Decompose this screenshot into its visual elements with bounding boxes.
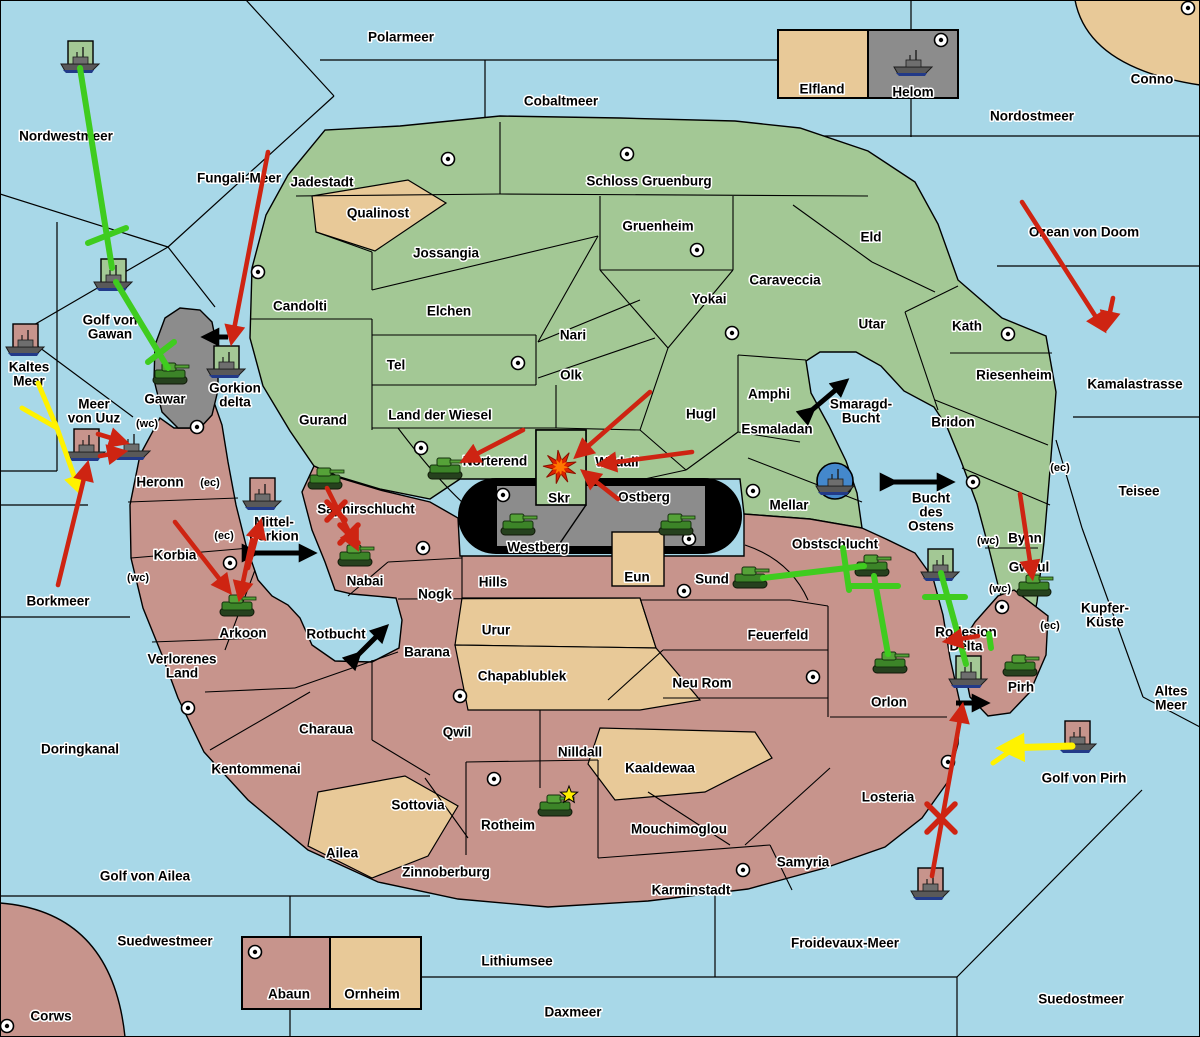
province-label: Kaaldewaa: [625, 761, 695, 776]
tank-barrel-icon: [755, 569, 769, 572]
coast-marker-label: (ec): [200, 477, 220, 489]
supply-center-icon: [249, 946, 262, 959]
province-label: Elfland: [799, 82, 844, 97]
province-label: Bridon: [931, 415, 975, 430]
ship-hull-icon: [207, 369, 245, 376]
tank-barrel-icon: [1039, 577, 1053, 580]
supply-center-dot: [687, 537, 691, 541]
province-label: Gruenheim: [622, 219, 693, 234]
sea-label: Fungali-Meer: [197, 171, 282, 186]
supply-center-icon: [747, 485, 760, 498]
sea-label: Golf von: [83, 313, 138, 328]
sea-label: Doringkanal: [41, 742, 119, 757]
supply-center-icon: [621, 148, 634, 161]
tank-barrel-icon: [895, 654, 909, 657]
sea-label: Rotbucht: [306, 627, 366, 642]
province-label: Losteria: [862, 790, 915, 805]
ship-waterline-icon: [923, 578, 954, 581]
province-label: Nabai: [347, 574, 384, 589]
province-label: Orlon: [871, 695, 907, 710]
supply-center-icon: [807, 671, 820, 684]
province-label: Jadestadt: [290, 175, 354, 190]
sea-label: Nordwestmeer: [19, 129, 114, 144]
ship-waterline-icon: [209, 375, 240, 378]
supply-center-icon: [497, 489, 510, 502]
tank-barrel-icon: [242, 597, 256, 600]
province-label: Neu Rom: [672, 676, 731, 691]
sea-label: Borkmeer: [26, 594, 90, 609]
ship-waterline-icon: [8, 353, 39, 356]
supply-center-dot: [446, 157, 450, 161]
sea-label: Lithiumsee: [481, 954, 553, 969]
tank-turret-icon: [317, 468, 331, 476]
tank-barrel-icon: [175, 365, 189, 368]
tank-barrel-icon: [681, 516, 695, 519]
sea-label: Gorkion: [209, 381, 261, 396]
sea-label: Golf von Pirh: [1042, 771, 1127, 786]
province-label: Ornheim: [344, 987, 400, 1002]
province-label: Qwil: [443, 725, 472, 740]
supply-center-icon: [691, 244, 704, 257]
province-label: Land der Wiesel: [388, 408, 491, 423]
province-label: Arkoon: [219, 626, 266, 641]
sea-label: Suedwestmeer: [117, 934, 213, 949]
province-label: Hills: [479, 575, 508, 590]
coast-marker-label: (wc): [127, 572, 149, 584]
province-label: Helom: [892, 85, 933, 100]
province-label: Mouchimoglou: [631, 822, 727, 837]
supply-center-dot: [421, 546, 425, 550]
ship-waterline-icon: [913, 897, 944, 900]
supply-center-dot: [195, 425, 199, 429]
sea-label: Kamalastrasse: [1087, 377, 1183, 392]
ship-waterline-icon: [896, 73, 927, 76]
province-label: Mellar: [769, 498, 809, 513]
coast-marker-label: (wc): [989, 583, 1011, 595]
tank-barrel-icon: [523, 516, 537, 519]
province-label: Land: [166, 666, 198, 681]
sea-label: des: [919, 505, 942, 520]
supply-center-icon: [678, 585, 691, 598]
sea-label: Meer: [78, 397, 110, 412]
ship-superstructure-icon: [219, 362, 234, 369]
game-map-stage: PolarmeerCobaltmeerNordostmeerNordwestme…: [0, 0, 1200, 1037]
province-label: Heronn: [136, 475, 183, 490]
ship-superstructure-icon: [961, 672, 976, 679]
supply-center-icon: [417, 542, 430, 555]
supply-center-dot: [1000, 605, 1004, 609]
ship-waterline-icon: [245, 507, 276, 510]
tank-turret-icon: [437, 458, 451, 466]
sea-label: Bucht: [912, 491, 951, 506]
province-label: Karminstadt: [652, 883, 731, 898]
ship-hull-icon: [94, 282, 132, 289]
province-label: Pirh: [1008, 680, 1034, 695]
province-label: Sund: [695, 572, 729, 587]
province-label: Gawar: [144, 392, 186, 407]
tank-turret-icon: [864, 555, 878, 563]
province-label: Yokai: [691, 292, 726, 307]
sea-label: Bucht: [842, 411, 881, 426]
ship-hull-icon: [816, 486, 854, 493]
sea-label: delta: [219, 395, 251, 410]
ship-waterline-icon: [951, 685, 982, 688]
ship-superstructure-icon: [923, 884, 938, 891]
ship-superstructure-icon: [18, 340, 33, 347]
province-label: Obstschlucht: [792, 537, 879, 552]
province-label: Corws: [30, 1009, 71, 1024]
supply-center-icon: [1, 1020, 14, 1033]
province-label: Samyria: [777, 855, 830, 870]
supply-center-dot: [516, 361, 520, 365]
supply-center-icon: [224, 557, 237, 570]
sea-label: von Uuz: [68, 411, 121, 426]
supply-center-icon: [182, 702, 195, 715]
ship-waterline-icon: [1060, 750, 1091, 753]
supply-center-dot: [730, 331, 734, 335]
supply-center-icon: [191, 421, 204, 434]
province-label: Candolti: [273, 299, 327, 314]
ship-superstructure-icon: [906, 60, 921, 67]
supply-center-icon: [967, 476, 980, 489]
supply-center-dot: [228, 561, 232, 565]
province-label: Esmaladan: [741, 422, 812, 437]
tank-turret-icon: [742, 567, 756, 575]
ship-hull-icon: [894, 67, 932, 74]
supply-center-dot: [741, 868, 745, 872]
sea-label: Nordostmeer: [990, 109, 1075, 124]
province-label: Verlorenes: [147, 652, 216, 667]
tank-barrel-icon: [877, 557, 891, 560]
province-label: Feuerfeld: [748, 628, 809, 643]
ship-superstructure-icon: [828, 479, 843, 486]
ship-hull-icon: [243, 501, 281, 508]
tank-turret-icon: [547, 795, 561, 803]
province-label: Tel: [387, 358, 406, 373]
supply-center-dot: [695, 248, 699, 252]
province-label: Abaun: [268, 987, 310, 1002]
supply-center-icon: [415, 442, 428, 455]
supply-center-dot: [253, 950, 257, 954]
province-label: Kentommenai: [211, 762, 300, 777]
province-label: Amphi: [748, 387, 790, 402]
sea-label: Golf von Ailea: [100, 869, 191, 884]
ship-waterline-icon: [114, 457, 145, 460]
ship-superstructure-icon: [255, 494, 270, 501]
sea-label: Kupfer-: [1081, 601, 1129, 616]
province-label: Qualinost: [347, 206, 410, 221]
supply-center-dot: [186, 706, 190, 710]
province-label: Ostberg: [618, 490, 670, 505]
supply-center-icon: [737, 864, 750, 877]
support-cut-bar: [989, 634, 991, 648]
ship-hull-icon: [949, 679, 987, 686]
supply-center-icon: [1182, 2, 1195, 15]
ship-superstructure-icon: [79, 445, 94, 452]
province-label: Utar: [858, 317, 886, 332]
sea-label: Kaltes: [9, 360, 50, 375]
sea-label: Polarmeer: [368, 30, 435, 45]
supply-center-icon: [996, 601, 1009, 614]
coast-marker-label: (wc): [136, 418, 158, 430]
coast-marker-label: (ec): [214, 530, 234, 542]
ship-hull-icon: [6, 347, 44, 354]
province-label: Kath: [952, 319, 982, 334]
supply-center-dot: [256, 270, 260, 274]
ship-waterline-icon: [818, 492, 849, 495]
province-label: Hugl: [686, 407, 716, 422]
sea-label: Ostens: [908, 519, 954, 534]
supply-center-dot: [682, 589, 686, 593]
sea-label: Suedostmeer: [1038, 992, 1124, 1007]
coast-marker-label: (ec): [1040, 620, 1060, 632]
province-label: Sottovia: [391, 798, 445, 813]
supply-center-icon: [935, 34, 948, 47]
province-label: Eun: [624, 570, 650, 585]
ship-superstructure-icon: [73, 57, 88, 64]
province-label: Elchen: [427, 304, 471, 319]
supply-center-dot: [5, 1024, 9, 1028]
tank-turret-icon: [1012, 655, 1026, 663]
sea-label: Küste: [1086, 615, 1124, 630]
supply-center-dot: [946, 760, 950, 764]
ship-hull-icon: [911, 891, 949, 898]
sea-label: Altes: [1154, 684, 1187, 699]
sea-label: Froidevaux-Meer: [791, 936, 900, 951]
province-label: Nilldall: [558, 745, 602, 760]
ship-waterline-icon: [69, 458, 100, 461]
sea-label: Cobaltmeer: [524, 94, 599, 109]
supply-center-dot: [751, 489, 755, 493]
province-label: Jossangia: [413, 246, 480, 261]
supply-center-icon: [442, 153, 455, 166]
supply-center-dot: [1186, 6, 1190, 10]
sea-label: Meer: [1155, 698, 1187, 713]
strategy-map: PolarmeerCobaltmeerNordostmeerNordwestme…: [0, 0, 1200, 1037]
province-label: Eld: [860, 230, 881, 245]
supply-center-dot: [971, 480, 975, 484]
province-label: Schloss Gruenburg: [586, 174, 711, 189]
ship-superstructure-icon: [124, 444, 139, 451]
supply-center-dot: [501, 493, 505, 497]
coast-marker-label: (wc): [977, 535, 999, 547]
tank-barrel-icon: [330, 470, 344, 473]
supply-center-icon: [726, 327, 739, 340]
province-label: Riesenheim: [976, 368, 1052, 383]
province-label: Gurand: [299, 413, 347, 428]
supply-center-dot: [939, 38, 943, 42]
supply-center-icon: [454, 690, 467, 703]
supply-center-dot: [625, 152, 629, 156]
supply-center-dot: [419, 446, 423, 450]
coast-marker-label: (ec): [1050, 462, 1070, 474]
supply-center-dot: [811, 675, 815, 679]
supply-center-dot: [458, 694, 462, 698]
province-label: Chapablublek: [478, 669, 567, 684]
province-label: Rotheim: [481, 818, 535, 833]
tank-barrel-icon: [1025, 657, 1039, 660]
province-label: Skr: [548, 491, 571, 506]
supply-center-icon: [252, 266, 265, 279]
province-label: Zinnoberburg: [402, 865, 490, 880]
province-label: Ailea: [326, 846, 359, 861]
province-label: Barana: [404, 645, 450, 660]
supply-center-icon: [1002, 328, 1015, 341]
province-label: Caraveccia: [749, 273, 821, 288]
province-label: Urur: [482, 623, 511, 638]
sea-label: Smaragd-: [830, 397, 892, 412]
province-label: Charaua: [299, 722, 354, 737]
sea-label: Daxmeer: [544, 1005, 602, 1020]
province-label: Nari: [560, 328, 586, 343]
sea-label: Teisee: [1118, 484, 1160, 499]
tank-barrel-icon: [360, 547, 374, 550]
province-label: Westberg: [507, 540, 568, 555]
supply-center-icon: [488, 773, 501, 786]
supply-center-dot: [1006, 332, 1010, 336]
province-label: Korbia: [154, 548, 197, 563]
province-label: Conno: [1131, 72, 1174, 87]
sea-label: Gawan: [88, 327, 132, 342]
tank-turret-icon: [668, 514, 682, 522]
supply-center-icon: [512, 357, 525, 370]
province-label: Olk: [560, 368, 582, 383]
province-label: Nogk: [418, 587, 452, 602]
tank-turret-icon: [510, 514, 524, 522]
supply-center-dot: [492, 777, 496, 781]
